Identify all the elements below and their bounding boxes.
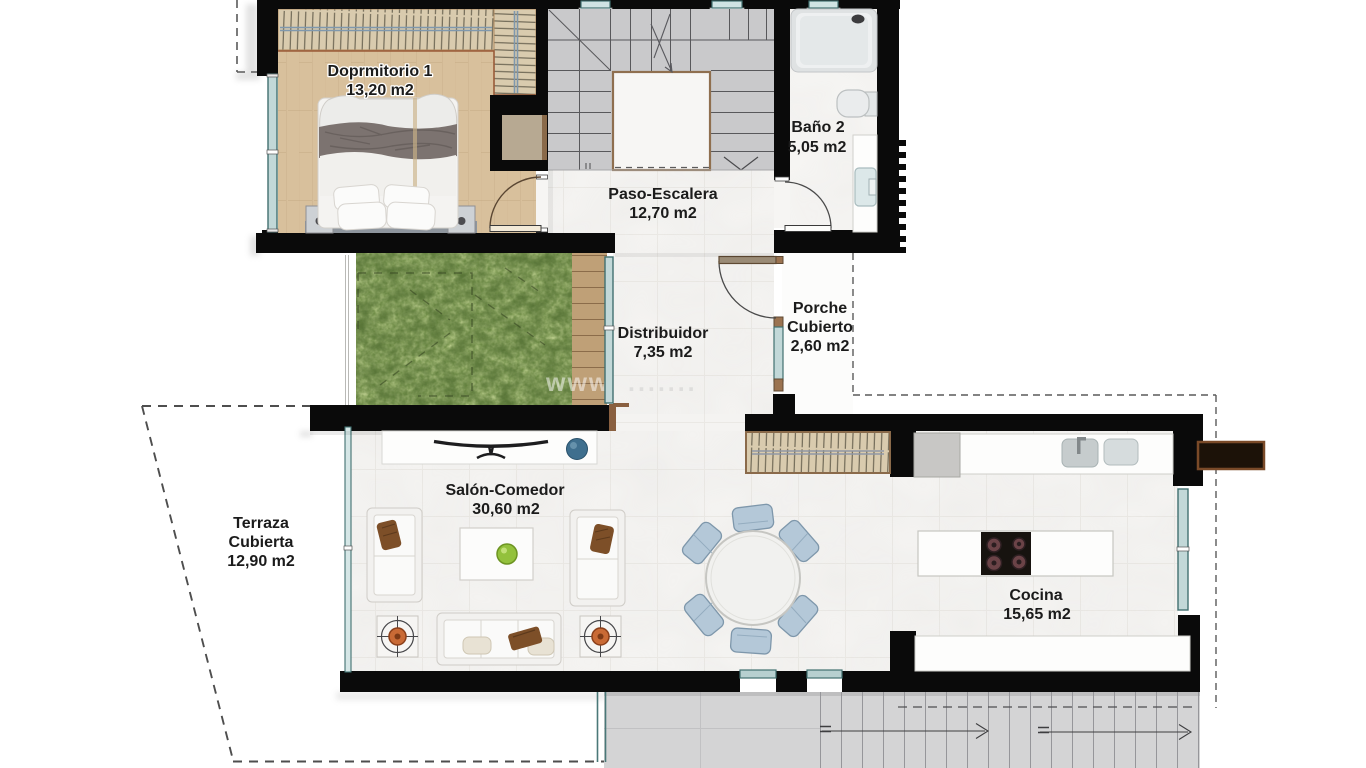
svg-text:12,90 m2: 12,90 m2 [227,553,295,570]
svg-text:www: www [545,369,610,397]
svg-text:Cocina: Cocina [1009,587,1062,604]
svg-text:Distribuidor: Distribuidor [618,325,709,342]
svg-text:.......: ....... [628,369,698,397]
svg-text:15,65 m2: 15,65 m2 [1003,606,1071,623]
svg-text:Doprmitorio 1: Doprmitorio 1 [328,63,433,80]
svg-text:2,60 m2: 2,60 m2 [791,338,850,355]
svg-text:Terraza: Terraza [233,515,289,532]
svg-text:Salón-Comedor: Salón-Comedor [445,482,564,499]
svg-text:Cubierto: Cubierto [787,319,853,336]
svg-text:5,05 m2: 5,05 m2 [788,139,847,156]
svg-text:13,20 m2: 13,20 m2 [346,82,414,99]
svg-text:Paso-Escalera: Paso-Escalera [608,186,718,203]
svg-text:Porche: Porche [793,300,847,317]
svg-text:Baño 2: Baño 2 [791,119,844,136]
svg-text:30,60 m2: 30,60 m2 [472,501,540,518]
svg-text:12,70 m2: 12,70 m2 [629,205,697,222]
svg-text:Cubierta: Cubierta [229,534,294,551]
svg-text:7,35 m2: 7,35 m2 [634,344,693,361]
